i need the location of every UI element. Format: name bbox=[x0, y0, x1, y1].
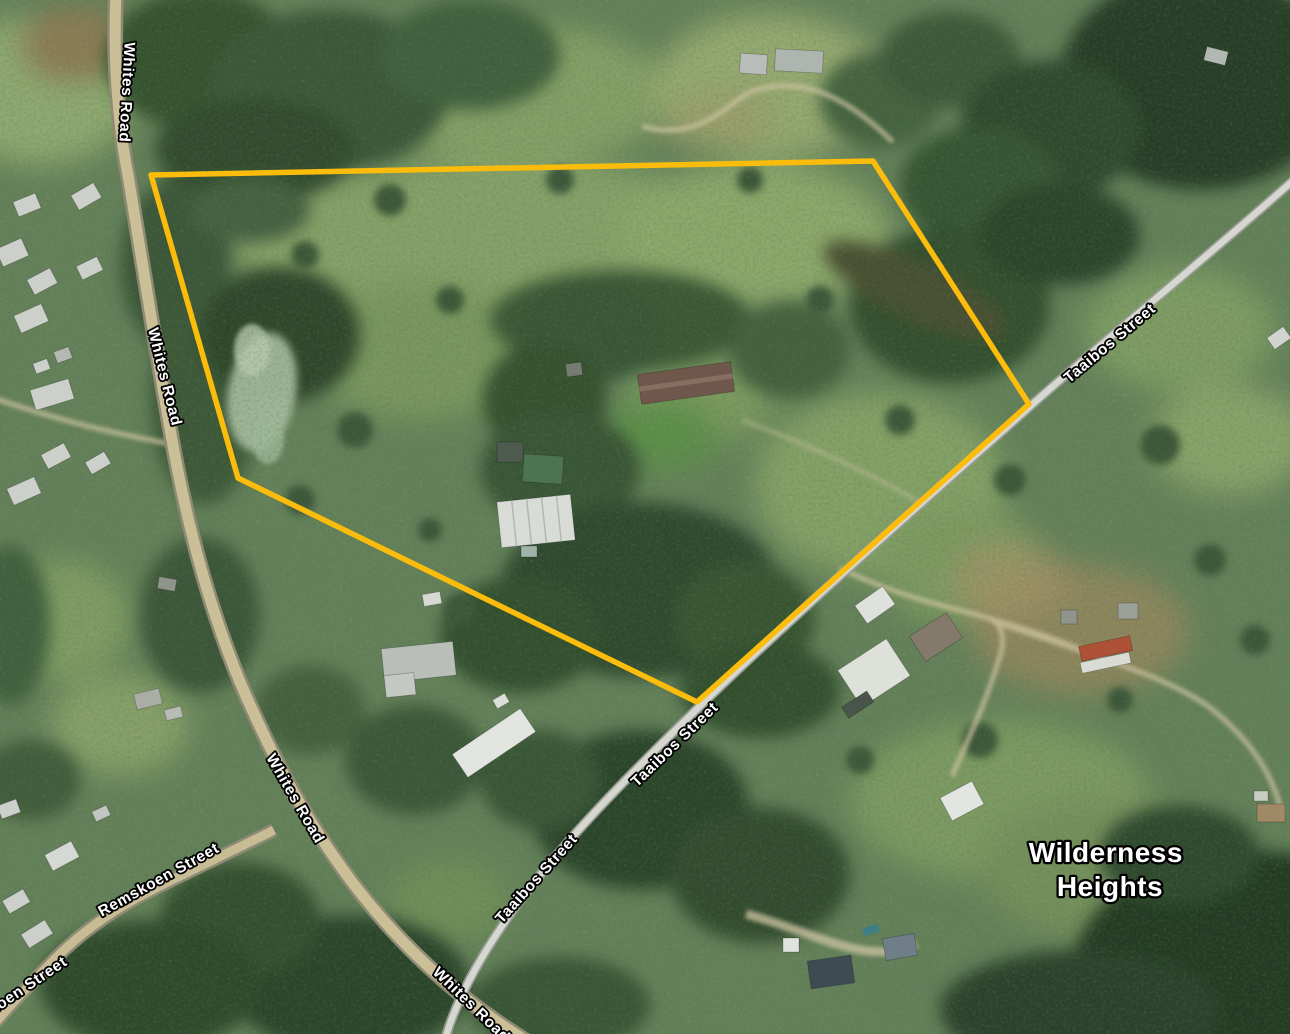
building bbox=[157, 577, 177, 592]
satellite-map-canvas: Whites Road Whites Road Whites Road Whit… bbox=[0, 0, 1290, 1034]
building bbox=[521, 546, 537, 557]
building-white-barn bbox=[497, 494, 575, 547]
building bbox=[1254, 791, 1268, 801]
building bbox=[1257, 804, 1285, 822]
building bbox=[774, 49, 823, 73]
building bbox=[497, 442, 523, 462]
map-viewport[interactable]: Whites Road Whites Road Whites Road Whit… bbox=[0, 0, 1290, 1034]
building bbox=[422, 592, 442, 607]
building bbox=[739, 53, 767, 75]
building bbox=[1061, 610, 1077, 624]
building bbox=[565, 362, 583, 377]
building bbox=[783, 938, 799, 952]
building bbox=[1118, 603, 1138, 619]
building bbox=[807, 955, 854, 989]
building-green-shed bbox=[522, 454, 564, 485]
